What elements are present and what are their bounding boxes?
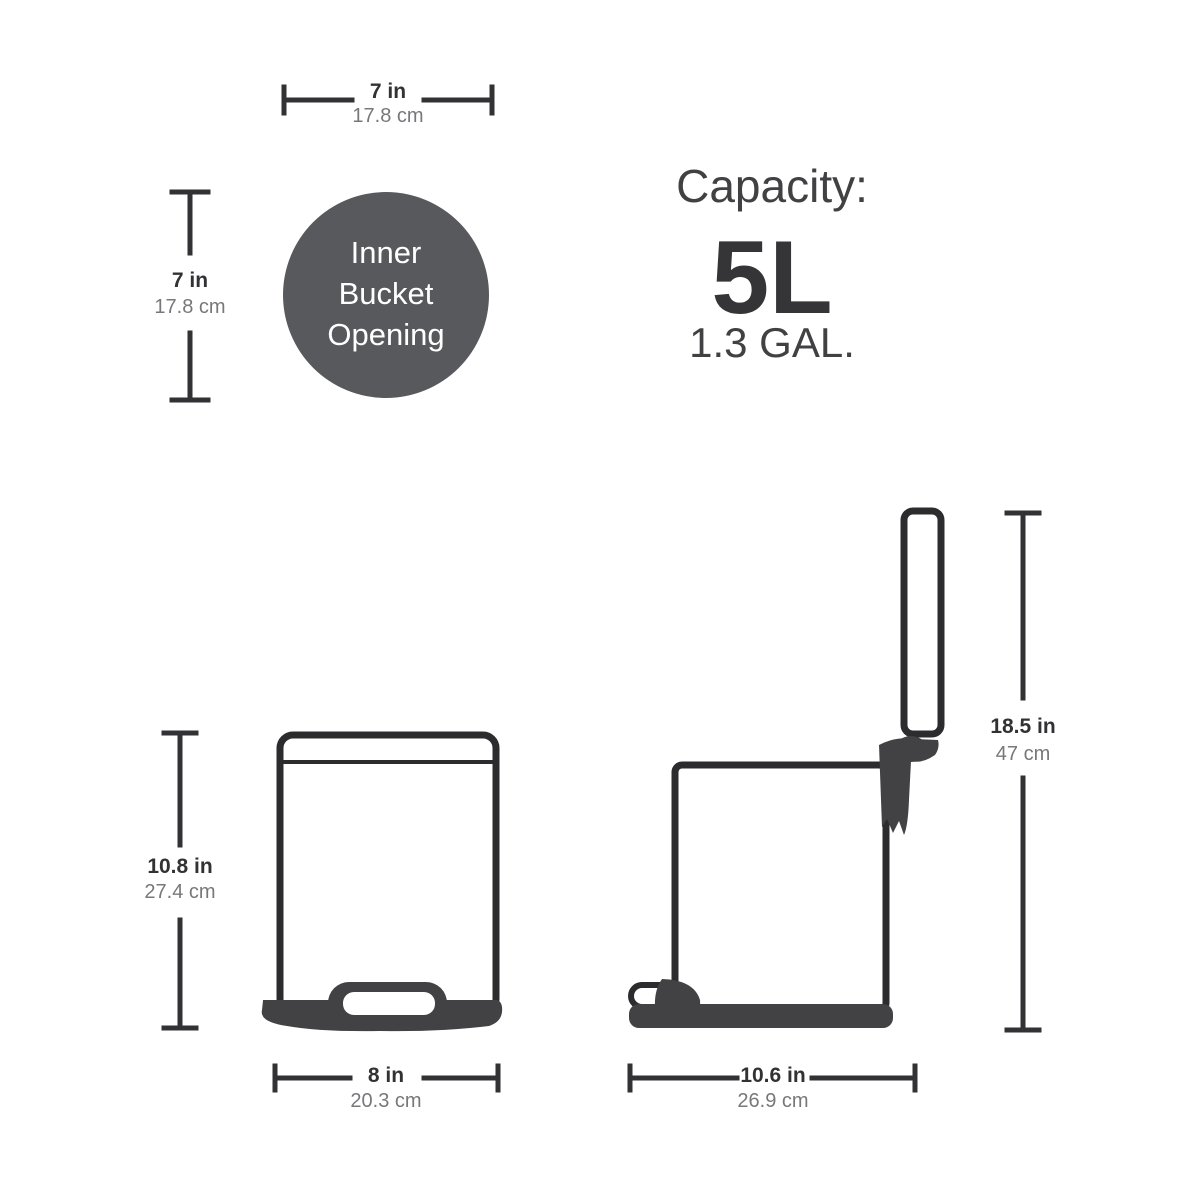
front-height-cm-label: 27.4 cm bbox=[144, 881, 215, 903]
trash-can-side-view bbox=[629, 511, 941, 1028]
side-height-dimension: 18.5 in 47 cm bbox=[990, 513, 1055, 1030]
inner-bucket-opening-circle: Inner Bucket Opening bbox=[283, 192, 489, 398]
dimensions-diagram-svg: 7 in 17.8 cm 7 in 17.8 cm Inner Bucket O… bbox=[0, 0, 1200, 1200]
side-base bbox=[629, 1004, 893, 1028]
trash-can-front-view bbox=[262, 735, 502, 1031]
bucket-width-inches-label: 7 in bbox=[370, 80, 406, 103]
side-hinge-knob bbox=[895, 736, 927, 762]
bucket-height-cm-label: 17.8 cm bbox=[154, 296, 225, 318]
capacity-title: Capacity: bbox=[676, 160, 868, 212]
front-width-dimension: 8 in 20.3 cm bbox=[275, 1064, 498, 1112]
front-pedal-opening bbox=[343, 992, 435, 1015]
front-width-cm-label: 20.3 cm bbox=[350, 1090, 421, 1112]
circle-label-line3: Opening bbox=[327, 317, 444, 352]
vertical-dimension-line bbox=[1007, 513, 1039, 1030]
side-depth-cm-label: 26.9 cm bbox=[737, 1090, 808, 1112]
side-height-inches-label: 18.5 in bbox=[990, 715, 1055, 738]
circle-label-line1: Inner bbox=[351, 235, 422, 270]
circle-label-line2: Bucket bbox=[339, 276, 434, 311]
side-open-lid-outline bbox=[904, 511, 941, 734]
bucket-width-cm-label: 17.8 cm bbox=[352, 105, 423, 127]
side-body-outline bbox=[675, 765, 886, 1010]
side-depth-inches-label: 10.6 in bbox=[740, 1064, 805, 1087]
bucket-height-inches-label: 7 in bbox=[172, 269, 208, 292]
front-height-inches-label: 10.8 in bbox=[147, 855, 212, 878]
side-height-cm-label: 47 cm bbox=[996, 743, 1050, 765]
front-height-dimension: 10.8 in 27.4 cm bbox=[144, 733, 215, 1028]
bucket-opening-height-dimension: 7 in 17.8 cm bbox=[154, 192, 225, 400]
capacity-block: Capacity: 5L 1.3 GAL. bbox=[676, 160, 868, 366]
capacity-gallons-value: 1.3 GAL. bbox=[689, 319, 855, 366]
side-depth-dimension: 10.6 in 26.9 cm bbox=[630, 1064, 915, 1112]
front-width-inches-label: 8 in bbox=[368, 1064, 404, 1087]
front-body-outline bbox=[280, 735, 496, 1012]
product-dimensions-diagram: 7 in 17.8 cm 7 in 17.8 cm Inner Bucket O… bbox=[0, 0, 1200, 1200]
bucket-opening-width-dimension: 7 in 17.8 cm bbox=[284, 80, 492, 127]
